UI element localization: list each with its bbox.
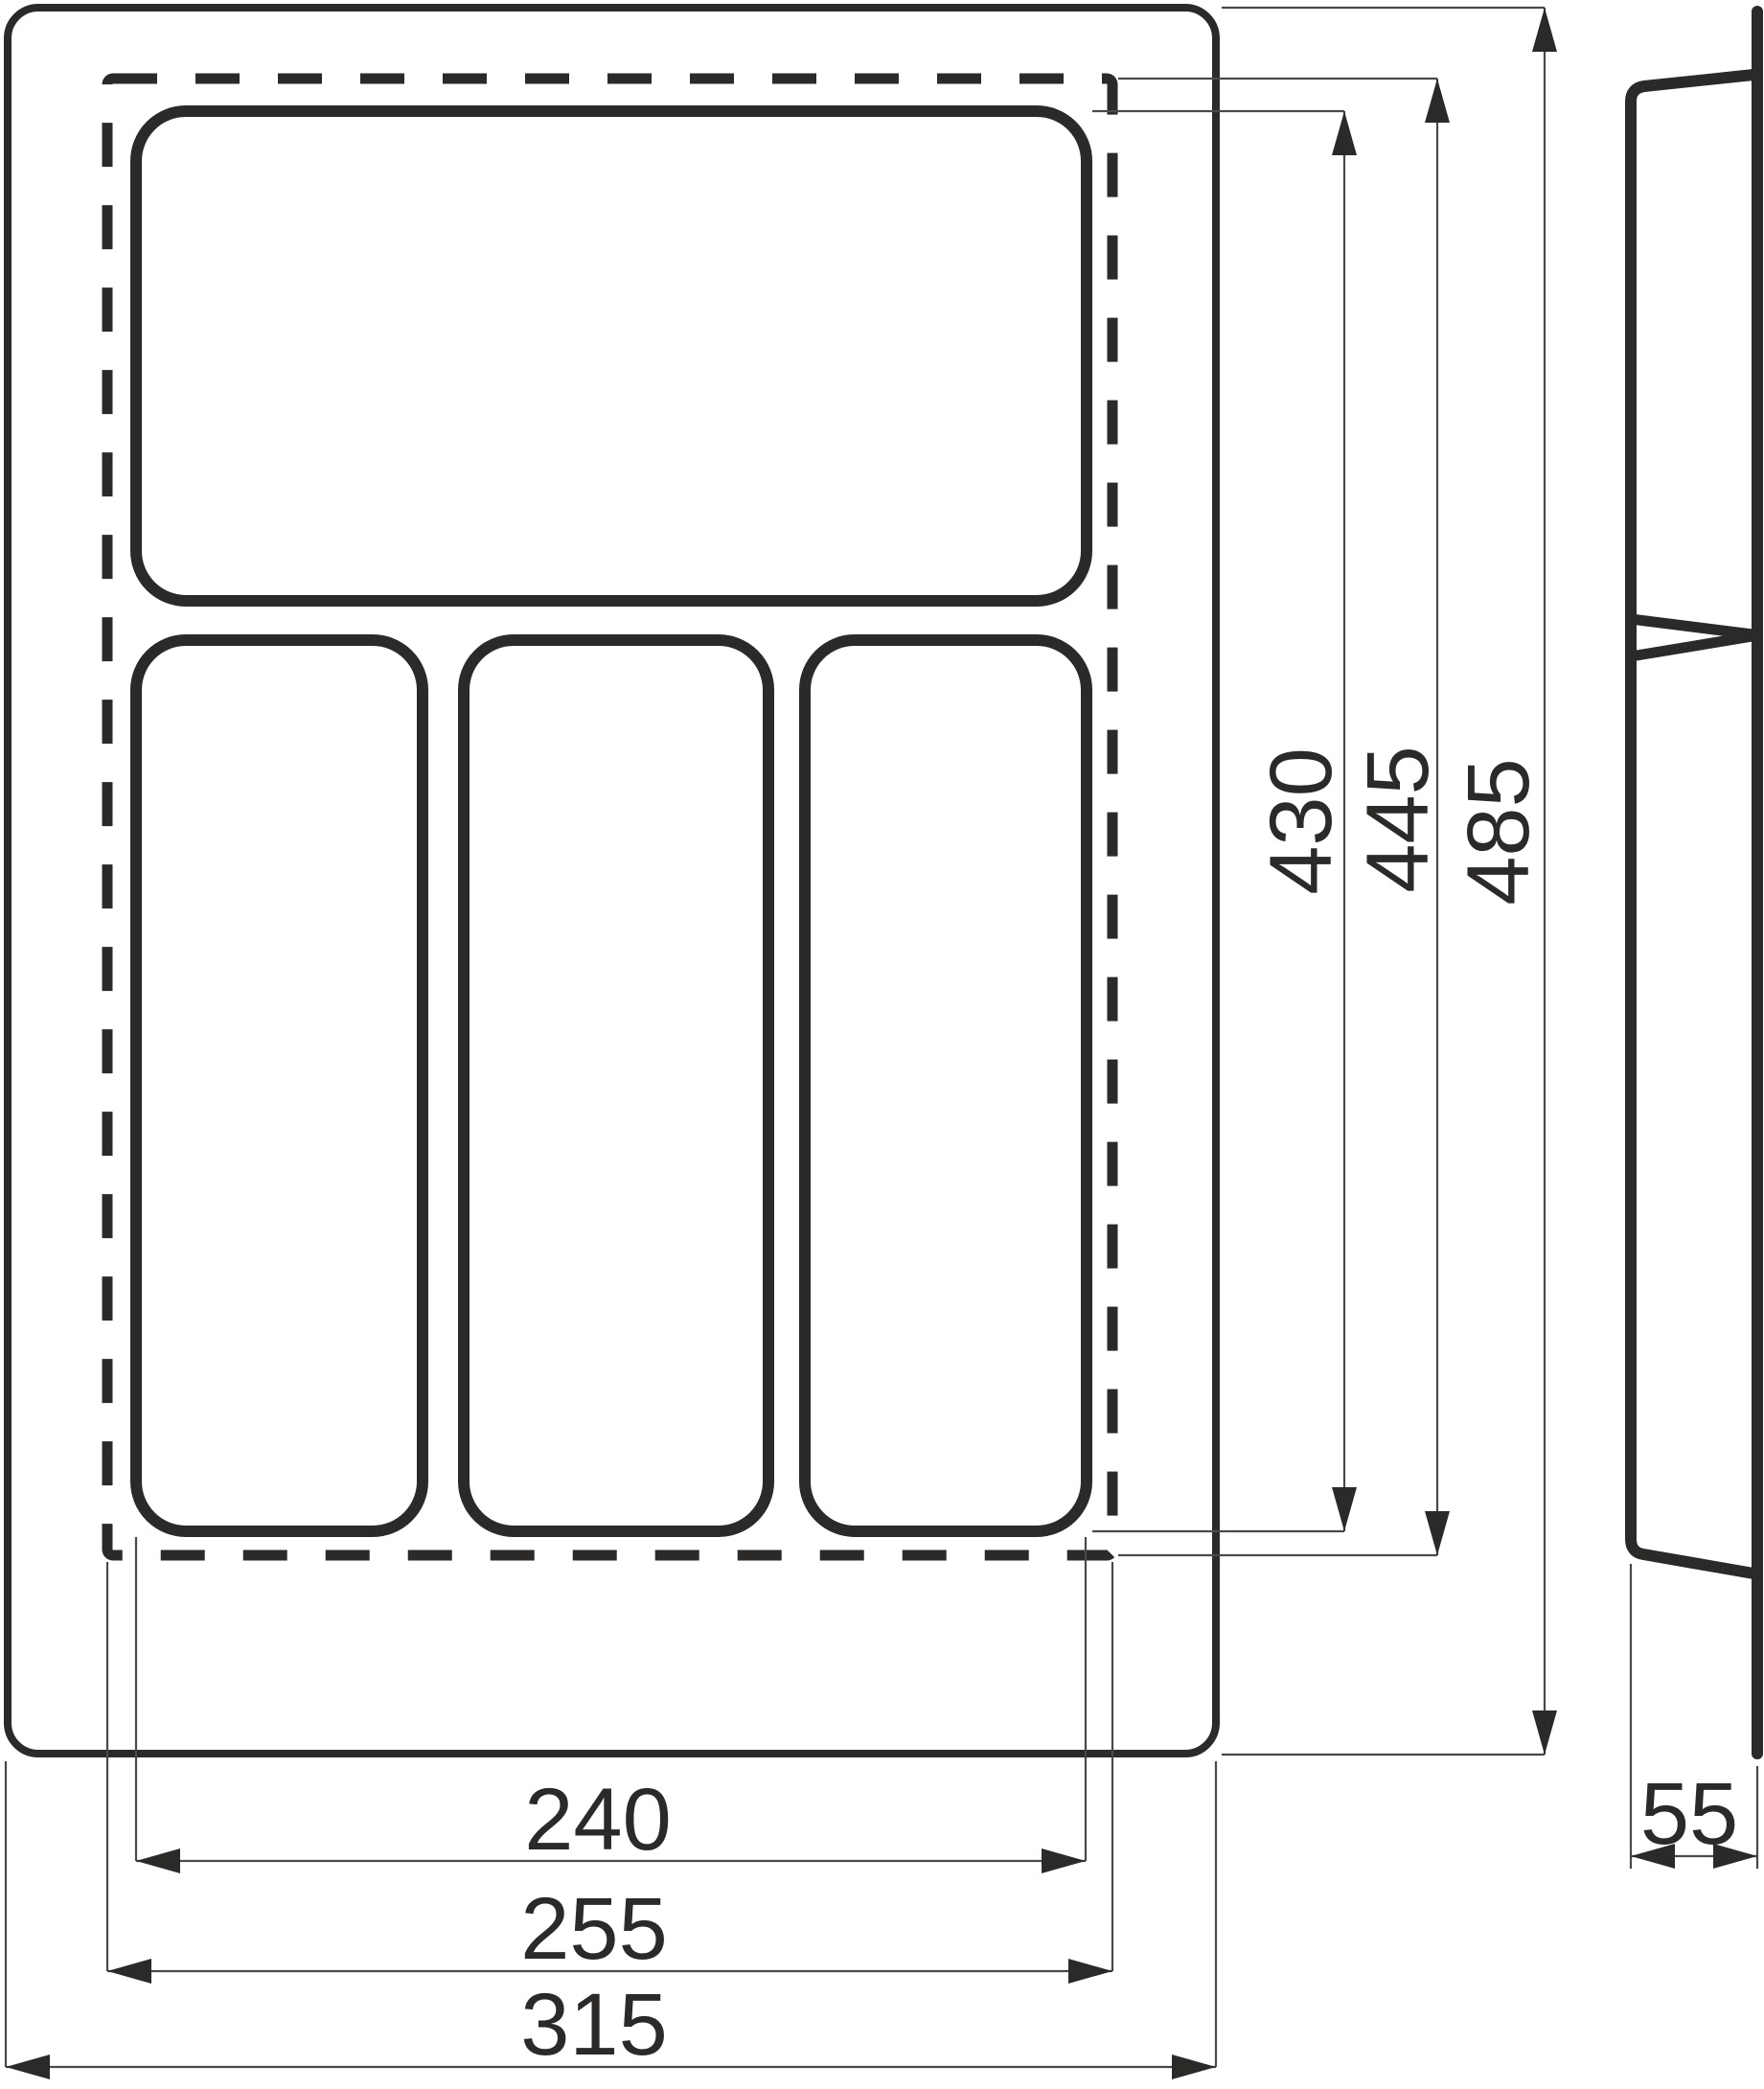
dim-315-arrow-left-icon bbox=[6, 2055, 50, 2079]
dim-255-arrow-left-icon bbox=[107, 1959, 151, 1984]
dim-255-label: 255 bbox=[520, 1880, 668, 1978]
dim-485-arrow-up-icon bbox=[1532, 8, 1557, 52]
dim-240-label: 240 bbox=[524, 1771, 672, 1869]
drawing-svg: 430 445 485 240 255 bbox=[0, 0, 1764, 2089]
side-view-wall-profile bbox=[1631, 75, 1753, 1573]
dim-240-arrow-left-icon bbox=[136, 1848, 180, 1873]
technical-drawing-cutlery-tray: 430 445 485 240 255 bbox=[0, 0, 1764, 2089]
front-view bbox=[8, 8, 1216, 1754]
dim-240-arrow-right-icon bbox=[1042, 1848, 1086, 1873]
trim-cut-dashed-outline bbox=[107, 79, 1112, 1555]
dim-430-arrow-up-icon bbox=[1332, 111, 1357, 155]
dim-445-arrow-up-icon bbox=[1425, 79, 1450, 123]
dim-485-arrow-down-icon bbox=[1532, 1710, 1557, 1755]
dim-485-label: 485 bbox=[1450, 758, 1547, 906]
compartment-middle bbox=[464, 640, 768, 1531]
dim-55-label: 55 bbox=[1640, 1765, 1738, 1863]
dim-445-label: 445 bbox=[1349, 746, 1447, 893]
compartment-left bbox=[136, 640, 423, 1531]
dim-430-label: 430 bbox=[1252, 747, 1350, 895]
side-view bbox=[1631, 11, 1757, 1754]
dim-445-arrow-down-icon bbox=[1425, 1511, 1450, 1555]
dim-315-arrow-right-icon bbox=[1172, 2055, 1216, 2079]
dimension-430: 430 bbox=[1092, 111, 1357, 1531]
compartment-top bbox=[136, 111, 1087, 601]
dimension-240: 240 bbox=[136, 1537, 1086, 1873]
dimension-55: 55 bbox=[1631, 1564, 1757, 1869]
dim-255-arrow-right-icon bbox=[1068, 1959, 1112, 1984]
dim-430-arrow-down-icon bbox=[1332, 1487, 1357, 1531]
compartment-right bbox=[805, 640, 1087, 1531]
dim-315-label: 315 bbox=[520, 1976, 668, 2074]
outer-tray-outline bbox=[8, 8, 1216, 1754]
side-view-divider-wedge bbox=[1631, 619, 1753, 656]
